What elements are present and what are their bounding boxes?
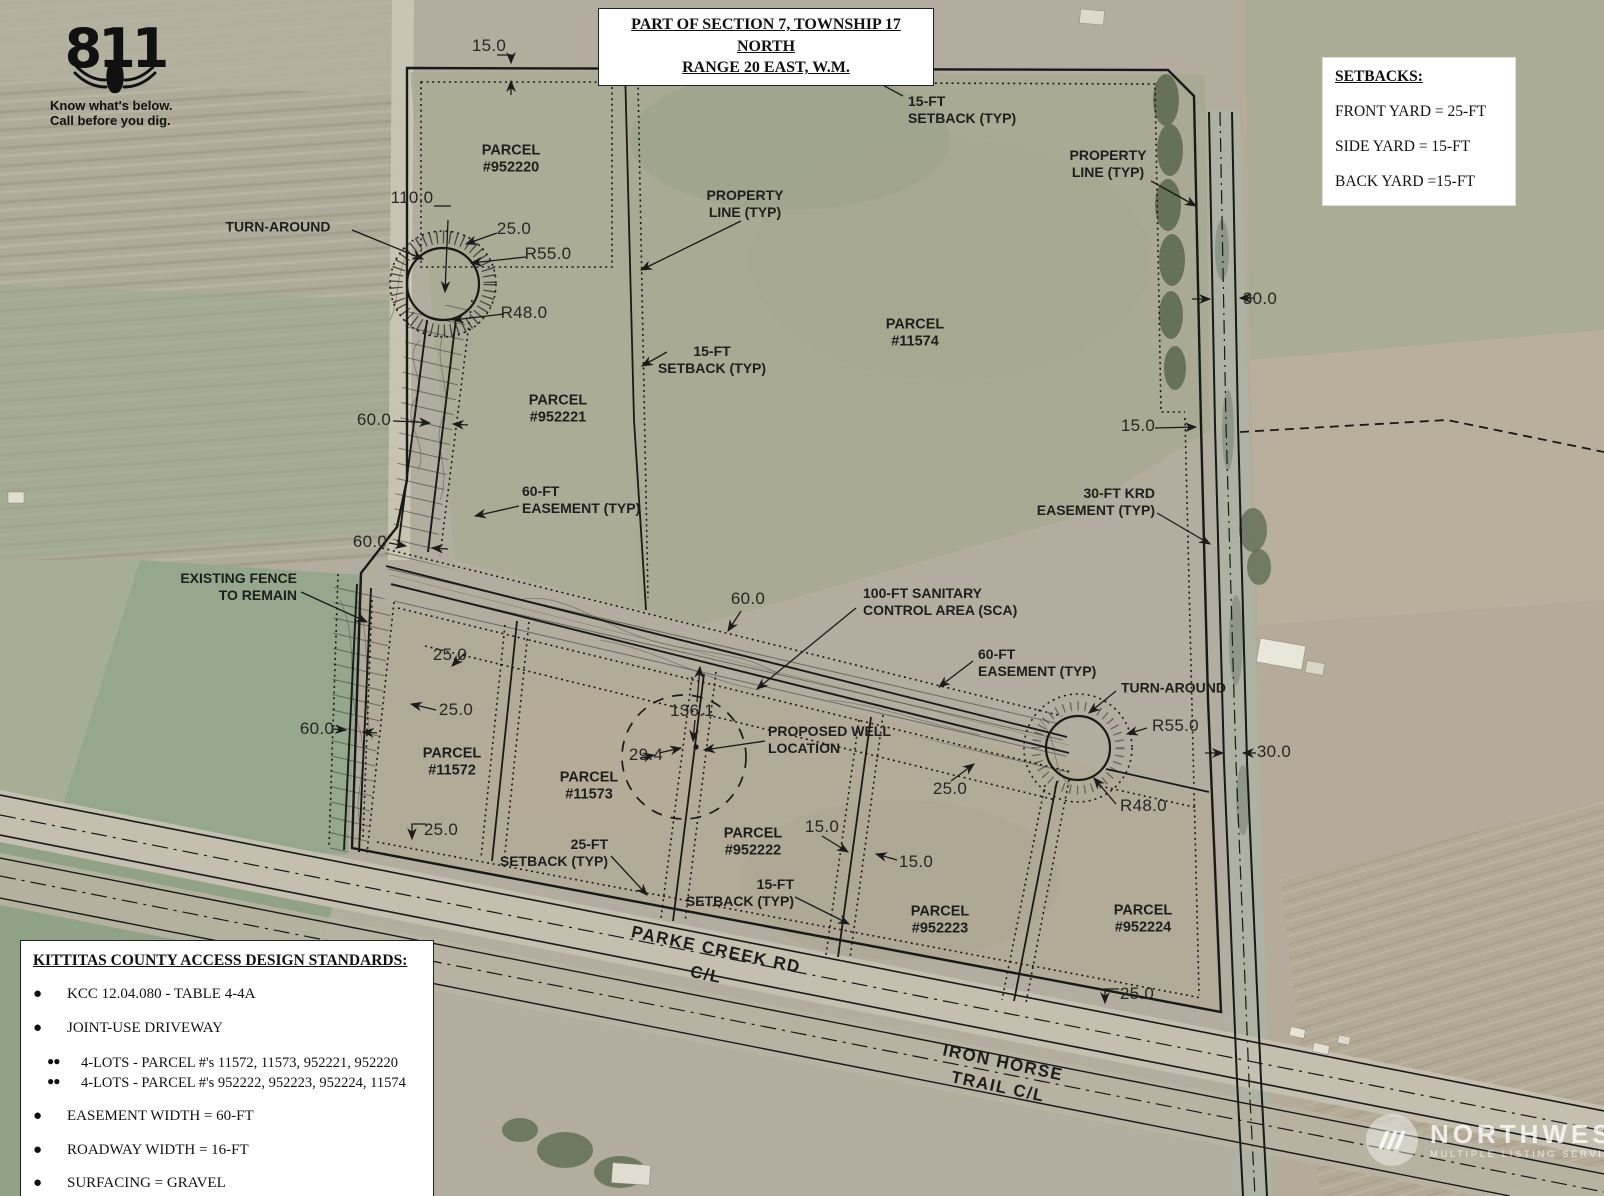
dim-25-a: 25.0	[497, 219, 531, 239]
standards-item: ●JOINT-USE DRIVEWAY	[33, 1019, 423, 1038]
dim-25-c: 25.0	[439, 700, 473, 720]
standards-item-text: KCC 12.04.080 - TABLE 4-4A	[67, 985, 256, 1004]
bullet-icon: ●	[33, 1141, 67, 1160]
setbacks-item: SIDE YARD = 15-FT	[1335, 138, 1503, 156]
label-25ft-setback: 25-FT SETBACK (TYP)	[500, 836, 608, 870]
title-block: PART OF SECTION 7, TOWNSHIP 17 NORTH RAN…	[598, 8, 934, 86]
standards-item-text: JOINT-USE DRIVEWAY	[67, 1019, 223, 1038]
bullet-icon: ●●	[33, 1074, 81, 1092]
dim-15-right: 15.0	[1121, 416, 1155, 436]
dim-60-b: 60.0	[353, 532, 387, 552]
standards-list: ●KCC 12.04.080 - TABLE 4-4A●JOINT-USE DR…	[33, 985, 423, 1193]
dim-r48-right: R48.0	[1120, 796, 1167, 816]
standards-item-text: EASEMENT WIDTH = 60-FT	[67, 1107, 254, 1126]
standards-item-text: 4-LOTS - PARCEL #'s 11572, 11573, 952221…	[81, 1054, 398, 1072]
standards-item-text: 4-LOTS - PARCEL #'s 952222, 952223, 9522…	[81, 1074, 406, 1092]
setbacks-list: FRONT YARD = 25-FTSIDE YARD = 15-FTBACK …	[1335, 103, 1503, 191]
standards-item: ●ROADWAY WIDTH = 16-FT	[33, 1141, 423, 1160]
parcel-952222: PARCEL #952222	[724, 826, 783, 861]
label-100ft-sca: 100-FT SANITARY CONTROL AREA (SCA)	[863, 585, 1017, 619]
setbacks-item: FRONT YARD = 25-FT	[1335, 103, 1503, 121]
parcel-952220: PARCEL #952220	[482, 143, 541, 178]
setbacks-item: BACK YARD =15-FT	[1335, 173, 1503, 191]
parcel-11573: PARCEL #11573	[560, 770, 619, 805]
parcel-952224: PARCEL #952224	[1114, 903, 1173, 938]
dim-15-c: 15.0	[899, 852, 933, 872]
dim-29-4: 29.4	[629, 745, 663, 765]
title-line-2: RANGE 20 EAST, W.M.	[605, 57, 927, 79]
bullet-icon: ●●	[33, 1054, 81, 1072]
dim-30-top: 30.0	[1243, 289, 1277, 309]
label-existing-fence: EXISTING FENCE TO REMAIN	[180, 570, 297, 604]
standards-title: KITTITAS COUNTY ACCESS DESIGN STANDARDS:	[33, 952, 423, 970]
label-15ft-setback-top: 15-FT SETBACK (TYP)	[908, 93, 1016, 127]
label-30ft-krd-easement: 30-FT KRD EASEMENT (TYP)	[1037, 485, 1155, 519]
setbacks-box: SETBACKS: FRONT YARD = 25-FTSIDE YARD = …	[1322, 57, 1516, 206]
road-parke-creek-cl: C/L	[688, 962, 723, 988]
standards-box: KITTITAS COUNTY ACCESS DESIGN STANDARDS:…	[20, 940, 434, 1196]
call-811-number: 811	[50, 26, 180, 72]
call-811-tagline-1: Know what's below.	[50, 98, 180, 114]
label-property-line-right: PROPERTY LINE (TYP)	[1069, 147, 1146, 181]
label-60ft-easement-left: 60-FT EASEMENT (TYP)	[522, 483, 640, 517]
dim-25-e: 25.0	[933, 779, 967, 799]
bullet-icon: ●	[33, 1019, 67, 1038]
standards-item: ●●4-LOTS - PARCEL #'s 11572, 11573, 9522…	[33, 1054, 423, 1072]
dim-25-f: 25.0	[1120, 984, 1154, 1004]
parcel-11572: PARCEL #11572	[423, 746, 482, 781]
dim-110: 110.0	[391, 188, 434, 208]
bullet-icon: ●	[33, 985, 67, 1004]
bullet-icon: ●	[33, 1174, 67, 1193]
label-proposed-well: PROPOSED WELL LOCATION	[768, 723, 891, 757]
label-15ft-setback-bottom: 15-FT SETBACK (TYP)	[686, 876, 794, 910]
title-line-1: PART OF SECTION 7, TOWNSHIP 17 NORTH	[605, 14, 927, 57]
bullet-icon: ●	[33, 1107, 67, 1126]
standards-item: ●EASEMENT WIDTH = 60-FT	[33, 1107, 423, 1126]
dim-25-d: 25.0	[424, 820, 458, 840]
dim-15-b: 15.0	[805, 817, 839, 837]
dim-136-1: 136.1	[670, 701, 714, 721]
label-60ft-easement-right: 60-FT EASEMENT (TYP)	[978, 646, 1096, 680]
parcel-952223: PARCEL #952223	[911, 904, 970, 939]
dim-60-c: 60.0	[731, 589, 765, 609]
label-15ft-setback-mid: 15-FT SETBACK (TYP)	[658, 343, 766, 377]
label-property-line-left: PROPERTY LINE (TYP)	[706, 187, 783, 221]
site-plan-page: 15.0PARCEL #952220110.0TURN-AROUND25.0R5…	[0, 0, 1604, 1196]
call-811-logo: 811 Know what's below. Call before you d…	[50, 26, 180, 129]
dim-25-b: 25.0	[433, 645, 467, 665]
label-turn-around-right: TURN-AROUND	[1121, 680, 1226, 697]
standards-item: ●●4-LOTS - PARCEL #'s 952222, 952223, 95…	[33, 1074, 423, 1092]
call-811-tagline-2: Call before you dig.	[50, 113, 180, 129]
parcel-952221: PARCEL #952221	[529, 393, 588, 428]
dim-30-bottom: 30.0	[1257, 742, 1291, 762]
standards-item-text: SURFACING = GRAVEL	[67, 1174, 226, 1193]
standards-item-text: ROADWAY WIDTH = 16-FT	[67, 1141, 249, 1160]
dim-r55-left: R55.0	[525, 244, 572, 264]
dim-r55-right: R55.0	[1152, 716, 1199, 736]
standards-item: ●KCC 12.04.080 - TABLE 4-4A	[33, 985, 423, 1004]
standards-item: ●SURFACING = GRAVEL	[33, 1174, 423, 1193]
dim-60-d: 60.0	[300, 719, 334, 739]
dim-15-top: 15.0	[472, 36, 506, 56]
parcel-11574: PARCEL #11574	[886, 317, 945, 352]
dim-60-a: 60.0	[357, 410, 391, 430]
setbacks-title: SETBACKS:	[1335, 68, 1503, 86]
label-turn-around-left: TURN-AROUND	[226, 219, 331, 236]
dim-r48-left: R48.0	[501, 303, 548, 323]
